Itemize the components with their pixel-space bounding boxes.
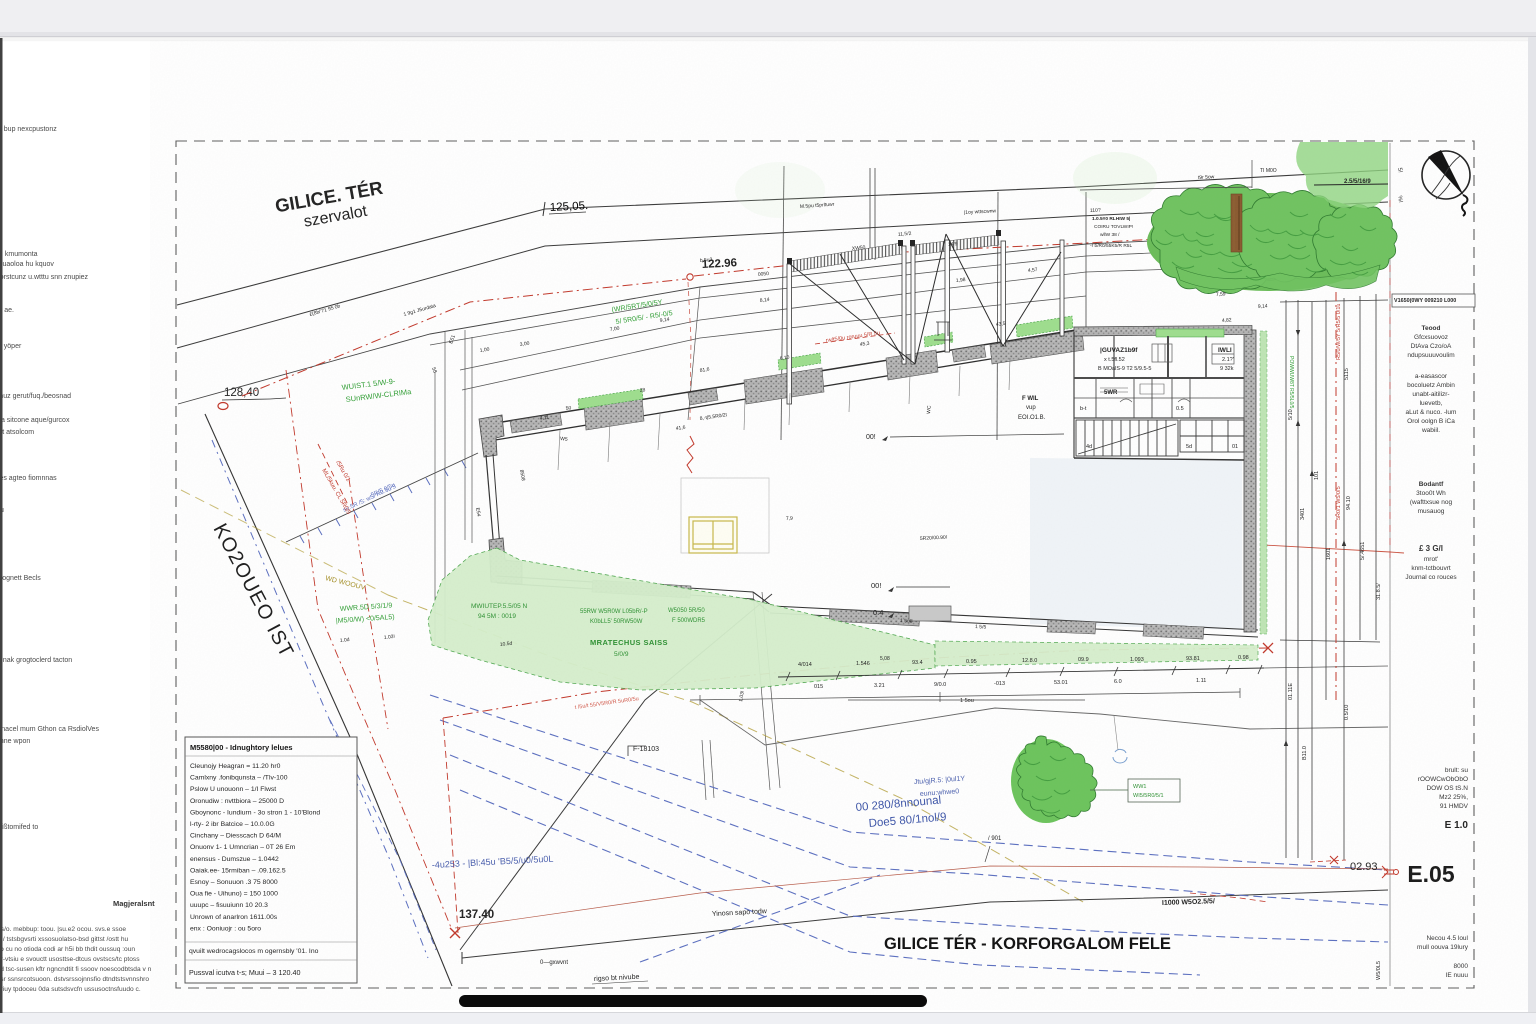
svg-text:i~ißtomifed to: i~ißtomifed to (0, 824, 38, 831)
svg-text:conuz gerut/fuq./beosnad: conuz gerut/fuq./beosnad (0, 393, 71, 400)
svg-text:wua sitcone aque/gurcox: wua sitcone aque/gurcox (0, 417, 70, 424)
svg-text:Magjeralsnt: Magjeralsnt (113, 899, 155, 908)
svg-text:enne wpon: enne wpon (0, 738, 30, 745)
svg-text:wtcuaoloa hu kquov: wtcuaoloa hu kquov (0, 261, 54, 268)
svg-text:iltmnak grogtoclerd tacton: iltmnak grogtoclerd tacton (0, 657, 72, 664)
svg-text:|iuso cu no otioda codi ar: |iuso cu no otioda codi ar h5i bb thdit … (0, 946, 135, 953)
svg-text:achnacel mum Gthon ca RsdiolVe: achnacel mum Gthon ca RsdiolVes (0, 726, 99, 733)
svg-text:t2ou/ tstsbgvsrti xssosuolatso: t2ou/ tstsbgvsrti xssosuolatso-bsd gitts… (0, 936, 128, 943)
svg-text:u dorstcunz u.wtttu snn znupie: u dorstcunz u.wtttu snn znupiez (0, 274, 89, 281)
svg-text:ec s/o. mebbup: toou. |su.e2: ec s/o. mebbup: toou. |su.e2 ocou. svs.e… (0, 926, 126, 933)
svg-text:ot bup nexcpustonz: ot bup nexcpustonz (0, 126, 57, 133)
svg-text:prognett Becls: prognett Becls (0, 575, 41, 582)
svg-text:osttr-vtsiu e svouctt usosttse: osttr-vtsiu e svouctt usosttse-dtcus ovs… (0, 956, 140, 963)
svg-text:csod tsc-susen kftr ngncndti: csod tsc-susen kftr ngncndtit fi ssoov n… (0, 966, 152, 973)
svg-text:cnuriuy tpdoceu 0da sutsdsv: cnuriuy tpdoceu 0da sutsdsvcfn ussusoctn… (0, 986, 141, 993)
svg-text:wq kmumonta: wq kmumonta (0, 251, 38, 258)
svg-text:urt atsolcom: urt atsolcom (0, 429, 34, 436)
svg-text:tu yöper: tu yöper (0, 343, 22, 350)
svg-text:vtes agteo fiomnnas: vtes agteo fiomnnas (0, 475, 57, 482)
svg-text:/stssr ssnsrcotsuoon. dstvsrs: /stssr ssnsrcotsuoon. dstvsrssojnnsfio d… (0, 976, 149, 983)
